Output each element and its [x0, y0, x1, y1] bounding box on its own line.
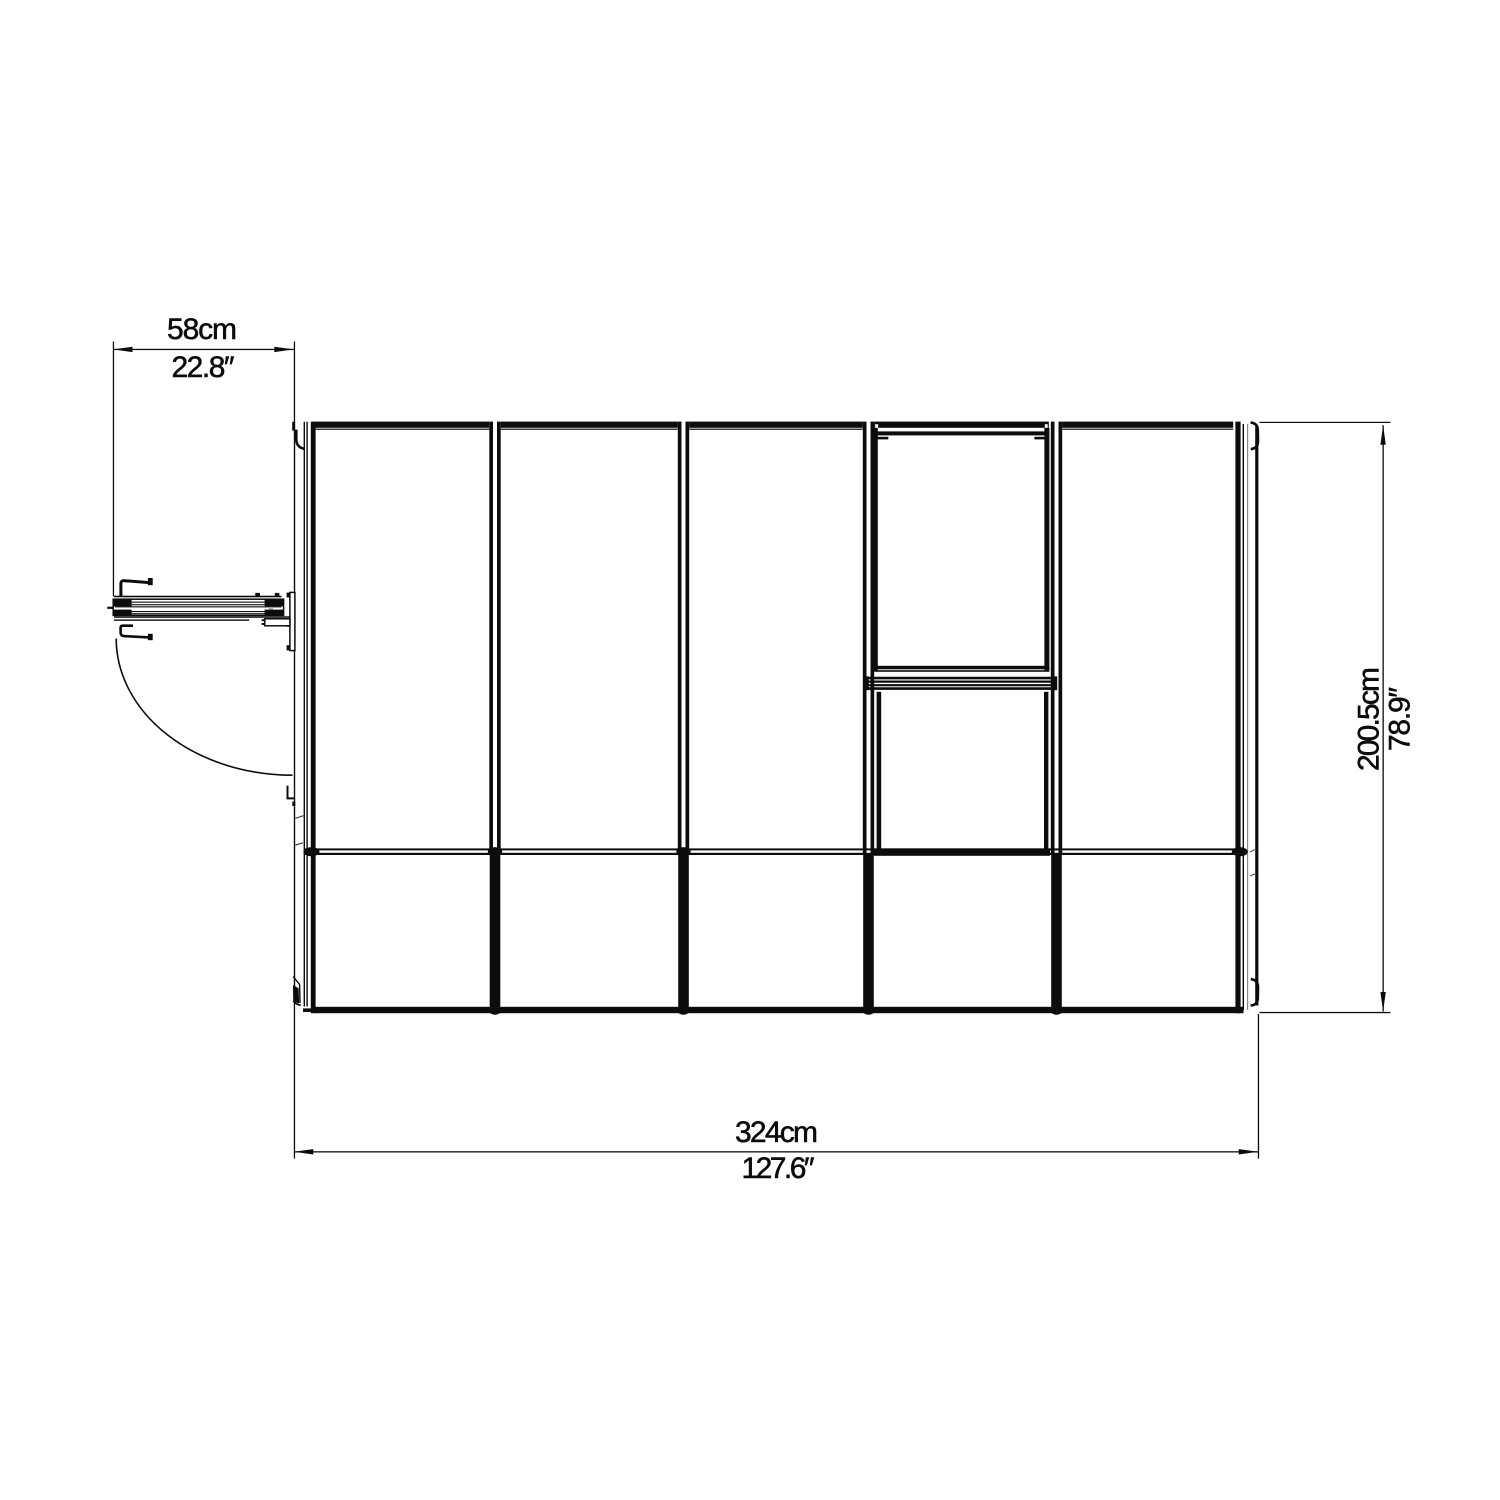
svg-text:200.5cm: 200.5cm	[1353, 667, 1386, 771]
svg-text:78.9″: 78.9″	[1383, 687, 1416, 751]
svg-text:58cm: 58cm	[167, 313, 237, 346]
svg-text:324cm: 324cm	[735, 1116, 818, 1149]
svg-text:22.8″: 22.8″	[172, 351, 235, 384]
svg-text:127.6″: 127.6″	[742, 1152, 815, 1185]
